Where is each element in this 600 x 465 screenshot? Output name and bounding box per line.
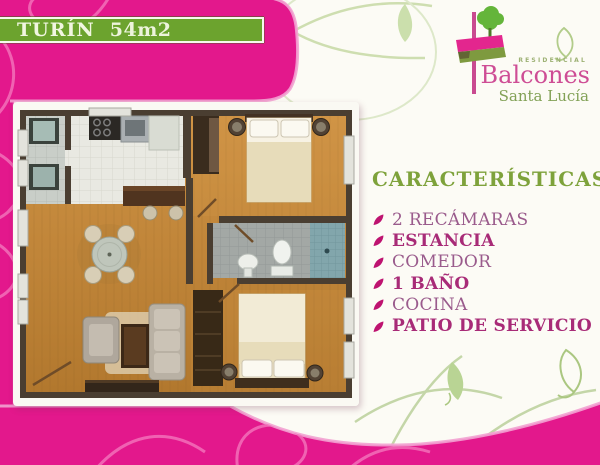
bathroom xyxy=(213,223,345,278)
feature-label: PATIO DE SERVICIO xyxy=(392,316,592,336)
feature-item: 2 RECÁMARAS xyxy=(372,209,592,230)
feature-item: COMEDOR xyxy=(372,252,592,273)
unit-area: 54m2 xyxy=(110,19,172,41)
brand-logo: RESIDENCIAL Balcones Santa Lucía xyxy=(440,2,590,108)
feature-item: 1 BAÑO xyxy=(372,273,592,294)
feature-item: PATIO DE SERVICIO xyxy=(372,315,592,336)
feature-label: COCINA xyxy=(392,295,468,315)
feature-item: COCINA xyxy=(372,294,592,315)
features-panel: CARACTERÍSTICAS 2 RECÁMARAS ESTANCIA COM… xyxy=(372,167,592,337)
dining-set xyxy=(77,224,141,284)
magenta-top-block xyxy=(0,0,298,101)
leaf-bullet-icon xyxy=(372,320,385,333)
feature-label: 2 RECÁMARAS xyxy=(392,210,528,230)
leaf-bullet-icon xyxy=(372,277,385,290)
magenta-bottom-band xyxy=(0,401,600,465)
leaf-icon xyxy=(398,4,412,42)
feature-label: COMEDOR xyxy=(392,252,491,272)
flyer-canvas: TURÍN 54m2 xyxy=(0,0,600,465)
leaf-bullet-icon xyxy=(372,298,385,311)
ribbon-icon xyxy=(456,35,506,63)
leaf-outline-icon xyxy=(558,350,581,397)
leaf-bullet-icon xyxy=(372,256,385,269)
feature-label: ESTANCIA xyxy=(392,231,495,251)
floor-plan-image xyxy=(13,102,359,406)
bedroom-2 xyxy=(193,290,323,388)
features-heading: CARACTERÍSTICAS xyxy=(372,167,592,191)
features-list: 2 RECÁMARAS ESTANCIA COMEDOR 1 BAÑO COCI… xyxy=(372,209,592,337)
unit-banner: TURÍN 54m2 xyxy=(0,17,264,43)
leaf-bullet-icon xyxy=(372,213,385,226)
feature-item: ESTANCIA xyxy=(372,230,592,251)
feature-label: 1 BAÑO xyxy=(392,274,469,294)
logo-subtitle: Santa Lucía xyxy=(499,87,589,105)
unit-name: TURÍN xyxy=(17,19,95,41)
leaf-bullet-icon xyxy=(372,234,385,247)
logo-name: Balcones xyxy=(481,62,591,88)
